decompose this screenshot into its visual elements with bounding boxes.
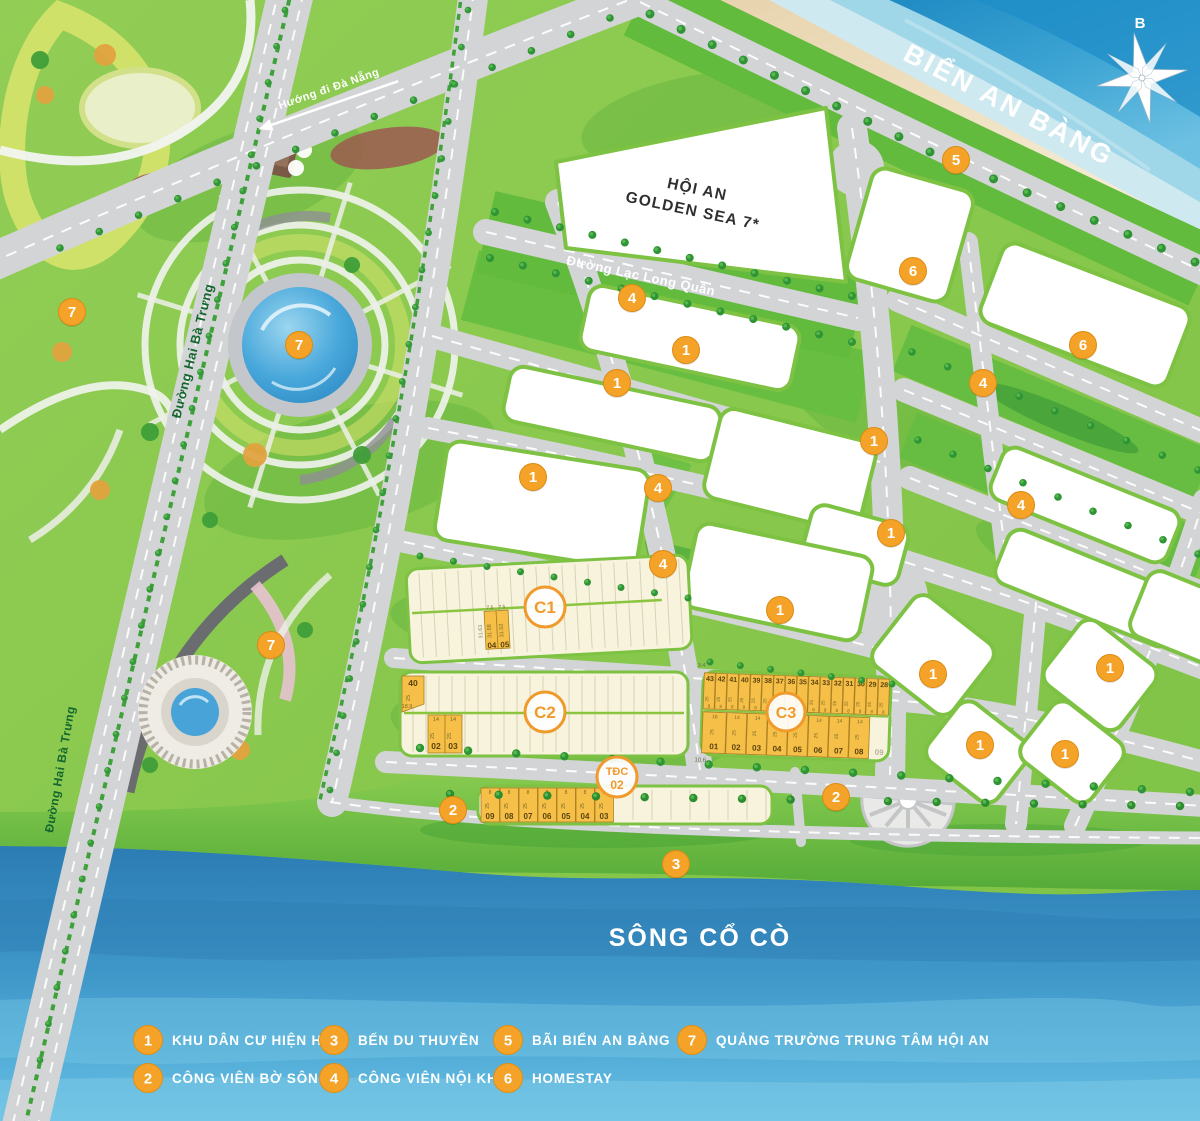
map-marker-2: 2 (440, 797, 467, 826)
svg-text:25: 25 (809, 699, 814, 705)
map-marker-1: 1 (861, 428, 888, 457)
svg-text:06: 06 (813, 746, 823, 755)
svg-text:40: 40 (408, 678, 418, 688)
master-plan-map: 31.6331.5831.527.57.50405402518.91414252… (0, 0, 1200, 1121)
svg-text:03: 03 (448, 741, 458, 751)
map-marker-7: 7 (286, 332, 313, 361)
svg-text:3: 3 (330, 1033, 338, 1050)
svg-text:4: 4 (1017, 497, 1026, 514)
map-marker-6: 6 (900, 258, 927, 287)
svg-text:25: 25 (727, 697, 732, 703)
svg-text:25: 25 (542, 803, 548, 809)
svg-text:25: 25 (762, 698, 767, 704)
svg-text:4: 4 (659, 556, 668, 573)
svg-text:25: 25 (716, 696, 721, 702)
svg-text:25: 25 (878, 702, 883, 708)
svg-text:25: 25 (793, 732, 799, 738)
svg-text:05: 05 (793, 745, 803, 754)
svg-text:7.5: 7.5 (498, 604, 505, 610)
svg-text:8: 8 (565, 790, 568, 796)
svg-text:08: 08 (505, 812, 514, 821)
label-tdc: TĐC02 (597, 757, 637, 797)
label-c3: C3 (767, 693, 805, 731)
svg-text:14: 14 (450, 717, 456, 723)
svg-text:BẾN DU THUYỀN: BẾN DU THUYỀN (358, 1033, 479, 1048)
svg-text:2: 2 (832, 789, 840, 806)
svg-text:25: 25 (772, 731, 778, 737)
svg-text:25: 25 (504, 803, 510, 809)
svg-text:1: 1 (929, 666, 937, 683)
svg-text:25: 25 (834, 733, 840, 739)
svg-text:7: 7 (267, 637, 275, 654)
svg-text:25: 25 (854, 734, 860, 740)
svg-text:2: 2 (144, 1071, 152, 1088)
svg-text:3: 3 (672, 856, 680, 873)
svg-text:14: 14 (734, 715, 740, 721)
svg-text:1: 1 (144, 1033, 152, 1050)
svg-text:7.5: 7.5 (486, 605, 493, 611)
svg-text:1: 1 (870, 433, 878, 450)
map-marker-4: 4 (1008, 492, 1035, 521)
svg-text:6: 6 (504, 1071, 512, 1088)
svg-text:04: 04 (581, 812, 590, 821)
svg-text:25: 25 (406, 695, 412, 701)
svg-text:39: 39 (752, 678, 760, 685)
svg-text:25: 25 (561, 803, 567, 809)
svg-text:HOMESTAY: HOMESTAY (532, 1071, 613, 1086)
svg-text:1: 1 (776, 602, 784, 619)
svg-text:1: 1 (682, 342, 690, 359)
map-marker-1: 1 (673, 337, 700, 366)
svg-text:8: 8 (584, 790, 587, 796)
svg-text:C3: C3 (776, 705, 797, 722)
svg-text:4: 4 (979, 375, 988, 392)
svg-text:40: 40 (741, 677, 749, 684)
svg-text:08: 08 (854, 747, 864, 756)
svg-text:QUẢNG TRƯỜNG TRUNG TÂM HỘI AN: QUẢNG TRƯỜNG TRUNG TÂM HỘI AN (716, 1033, 989, 1048)
svg-text:BÃI BIỂN AN BÀNG: BÃI BIỂN AN BÀNG (532, 1033, 670, 1048)
map-marker-1: 1 (967, 732, 994, 761)
svg-text:29: 29 (869, 682, 877, 689)
svg-text:25: 25 (599, 803, 605, 809)
svg-text:14: 14 (755, 716, 761, 722)
map-marker-1: 1 (767, 597, 794, 626)
svg-text:16: 16 (712, 714, 718, 720)
map-marker-1: 1 (878, 520, 905, 549)
svg-text:5: 5 (952, 152, 960, 169)
svg-text:14: 14 (433, 717, 439, 723)
map-marker-4: 4 (619, 285, 646, 314)
svg-text:1: 1 (613, 375, 621, 392)
svg-text:14: 14 (837, 718, 843, 724)
map-canvas: 31.6331.5831.527.57.50405402518.91414252… (0, 0, 1200, 1121)
label-c1: C1 (525, 587, 565, 627)
svg-text:8: 8 (489, 790, 492, 796)
svg-text:25: 25 (855, 701, 860, 707)
svg-text:4: 4 (628, 290, 637, 307)
river-name-label: SÔNG CỔ CÒ (609, 922, 792, 952)
map-marker-1: 1 (920, 661, 947, 690)
svg-text:7: 7 (295, 337, 303, 354)
svg-text:34: 34 (811, 680, 819, 687)
svg-text:31: 31 (845, 681, 853, 688)
svg-text:03: 03 (752, 744, 762, 753)
svg-text:1: 1 (529, 469, 537, 486)
svg-text:03: 03 (600, 812, 609, 821)
svg-text:36: 36 (787, 679, 795, 686)
svg-text:25: 25 (447, 733, 453, 739)
svg-text:25: 25 (709, 729, 715, 735)
svg-text:4: 4 (654, 480, 663, 497)
svg-text:1: 1 (976, 737, 984, 754)
svg-text:25: 25 (739, 697, 744, 703)
svg-text:14: 14 (857, 719, 863, 725)
svg-text:6: 6 (909, 263, 917, 280)
svg-text:02: 02 (431, 741, 441, 751)
svg-text:07: 07 (524, 812, 533, 821)
svg-text:KHU DÂN CƯ HIỆN HỮU: KHU DÂN CƯ HIỆN HỮU (172, 1033, 345, 1048)
svg-text:25: 25 (844, 701, 849, 707)
svg-text:8: 8 (508, 790, 511, 796)
svg-text:25: 25 (751, 697, 756, 703)
svg-text:6: 6 (1079, 337, 1087, 354)
map-marker-7: 7 (258, 632, 285, 661)
svg-text:04: 04 (772, 744, 782, 753)
svg-text:25: 25 (704, 696, 709, 702)
svg-text:25: 25 (731, 730, 737, 736)
svg-text:1: 1 (1061, 746, 1069, 763)
svg-text:25: 25 (832, 700, 837, 706)
map-marker-1: 1 (520, 464, 547, 493)
svg-text:04: 04 (487, 641, 497, 650)
svg-text:3.4: 3.4 (698, 663, 706, 669)
svg-text:02: 02 (610, 778, 624, 792)
svg-text:42: 42 (718, 676, 726, 683)
map-marker-7: 7 (59, 299, 86, 328)
svg-text:25: 25 (752, 731, 758, 737)
svg-text:1: 1 (1106, 660, 1114, 677)
svg-text:09: 09 (875, 748, 885, 757)
svg-text:25: 25 (523, 803, 529, 809)
svg-text:33: 33 (822, 680, 830, 687)
map-marker-1: 1 (604, 370, 631, 399)
map-marker-6: 6 (1070, 332, 1097, 361)
svg-text:TĐC: TĐC (606, 766, 629, 778)
map-marker-4: 4 (645, 475, 672, 504)
svg-text:25: 25 (867, 702, 872, 708)
svg-text:01: 01 (709, 742, 719, 751)
map-marker-3: 3 (663, 851, 690, 880)
map-marker-4: 4 (970, 370, 997, 399)
svg-text:28: 28 (880, 682, 888, 689)
map-marker-1: 1 (1097, 655, 1124, 684)
svg-text:1: 1 (887, 525, 895, 542)
svg-text:25: 25 (813, 733, 819, 739)
svg-text:2: 2 (449, 802, 457, 819)
svg-text:14: 14 (816, 718, 822, 724)
map-marker-2: 2 (823, 784, 850, 813)
compass-north-label: B (1135, 15, 1146, 32)
svg-text:43: 43 (706, 676, 714, 683)
label-c2: C2 (525, 692, 565, 732)
svg-text:07: 07 (834, 746, 844, 755)
svg-text:31.63: 31.63 (478, 625, 485, 639)
svg-text:35: 35 (799, 679, 807, 686)
svg-text:06: 06 (543, 812, 552, 821)
svg-text:05: 05 (562, 812, 571, 821)
svg-text:25: 25 (820, 700, 825, 706)
svg-text:CÔNG VIÊN NỘI KHU: CÔNG VIÊN NỘI KHU (358, 1071, 508, 1086)
map-marker-5: 5 (943, 147, 970, 176)
svg-text:7: 7 (688, 1033, 696, 1050)
svg-text:05: 05 (500, 640, 510, 649)
svg-text:38: 38 (764, 678, 772, 685)
svg-text:25: 25 (580, 803, 586, 809)
map-marker-1: 1 (1052, 741, 1079, 770)
svg-text:32: 32 (834, 680, 842, 687)
svg-text:41: 41 (729, 677, 737, 684)
svg-text:37: 37 (776, 678, 784, 685)
map-marker-4: 4 (650, 551, 677, 580)
svg-text:C2: C2 (534, 703, 556, 722)
svg-text:CÔNG VIÊN BỜ SÔNG: CÔNG VIÊN BỜ SÔNG (172, 1071, 330, 1086)
svg-text:C1: C1 (534, 598, 556, 617)
svg-text:8: 8 (527, 790, 530, 796)
svg-text:25: 25 (430, 733, 436, 739)
svg-text:5: 5 (504, 1033, 512, 1050)
svg-text:31.58: 31.58 (487, 624, 494, 638)
svg-text:7: 7 (68, 304, 76, 321)
svg-text:4: 4 (330, 1071, 339, 1088)
svg-text:02: 02 (731, 743, 741, 752)
svg-text:31.52: 31.52 (499, 623, 506, 637)
svg-text:25: 25 (485, 803, 491, 809)
svg-text:09: 09 (486, 812, 495, 821)
svg-text:18.9: 18.9 (402, 704, 413, 710)
